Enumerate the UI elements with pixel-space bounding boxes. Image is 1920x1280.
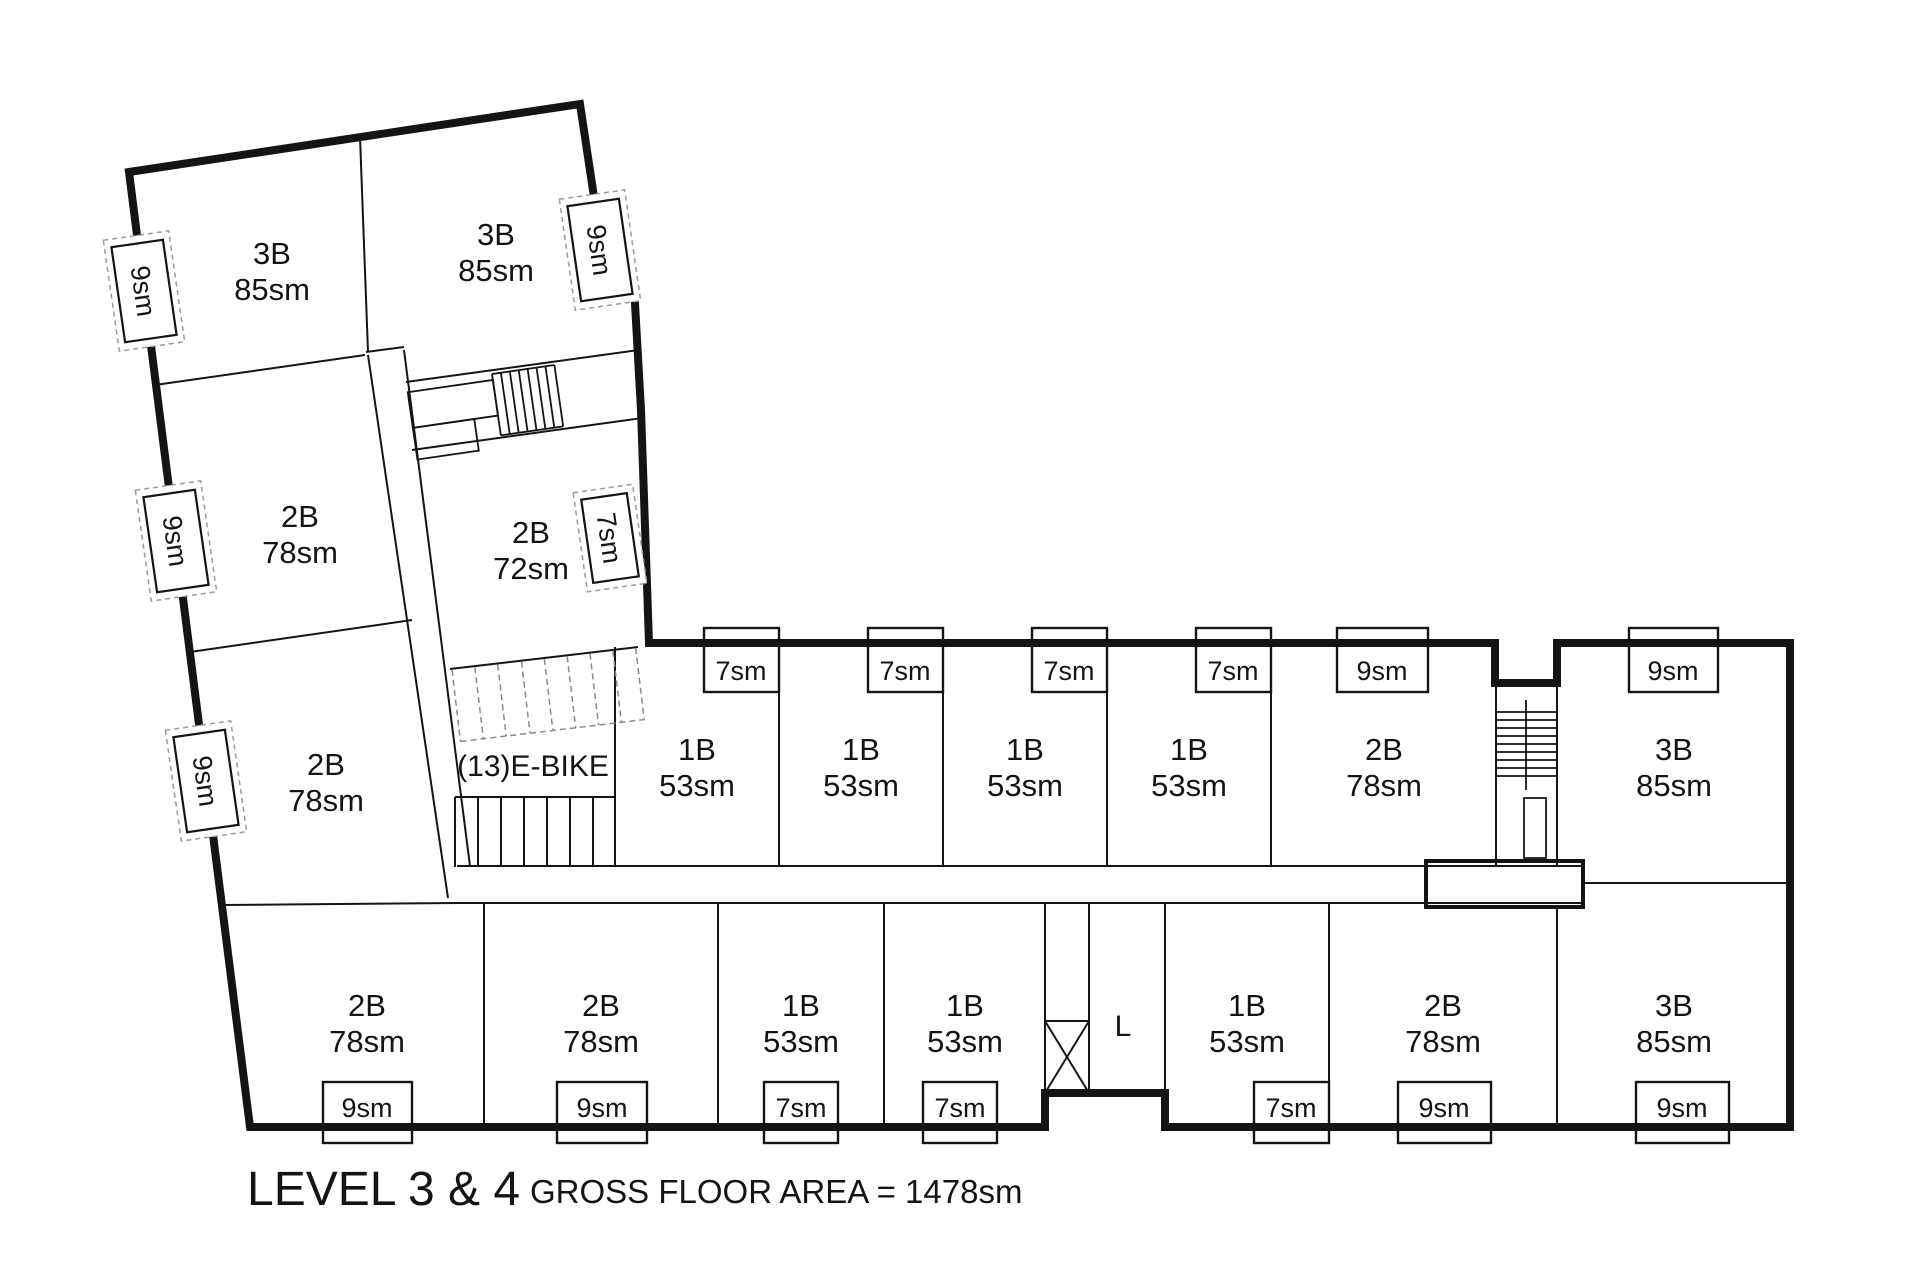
unit-area: 53sm [927, 1024, 1003, 1059]
unit-b1-2b: 2B 78sm [329, 988, 405, 1059]
elevator-label: L [1115, 1010, 1132, 1043]
unit-m1-1b: 1B 53sm [659, 732, 735, 803]
unit-m4-1b: 1B 53sm [1151, 732, 1227, 803]
balcony-label: 7sm [1043, 656, 1094, 686]
unit-type: 2B [281, 499, 319, 534]
balcony-label: 9sm [1647, 656, 1698, 686]
stair-landing [1426, 861, 1583, 907]
unit-area: 78sm [288, 783, 364, 818]
unit-w2-3b: 3B 85sm [458, 217, 534, 288]
unit-type: 1B [946, 988, 984, 1023]
unit-w3-2b: 2B 78sm [262, 499, 338, 570]
unit-w5-2b: 2B 78sm [288, 747, 364, 818]
balcony-boxes-bottom: 9sm 9sm 7sm 7sm 7sm 9sm 9sm [323, 1082, 1729, 1143]
unit-area: 85sm [1636, 768, 1712, 803]
unit-b3-1b: 1B 53sm [763, 988, 839, 1059]
unit-type: 2B [307, 747, 345, 782]
unit-type: 3B [1655, 988, 1693, 1023]
unit-type: 2B [512, 515, 550, 550]
unit-area: 78sm [1346, 768, 1422, 803]
unit-area: 53sm [763, 1024, 839, 1059]
unit-area: 53sm [659, 768, 735, 803]
unit-area: 85sm [1636, 1024, 1712, 1059]
unit-type: 1B [678, 732, 716, 767]
unit-area: 78sm [563, 1024, 639, 1059]
unit-type: 3B [1655, 732, 1693, 767]
unit-area: 85sm [458, 253, 534, 288]
unit-area: 85sm [234, 272, 310, 307]
interior-walls [155, 137, 1790, 1127]
plan-subtitle: GROSS FLOOR AREA = 1478sm [530, 1173, 1022, 1210]
balcony-label: 9sm [1356, 656, 1407, 686]
balcony-boxes-top: 7sm 7sm 7sm 7sm 9sm 9sm [704, 628, 1718, 692]
exterior-walls [129, 104, 1790, 1127]
unit-area: 78sm [262, 535, 338, 570]
unit-area: 53sm [823, 768, 899, 803]
floor-plan-drawing: 7sm 7sm 7sm 7sm 9sm 9sm 9sm 9sm 7sm 7sm … [0, 0, 1920, 1280]
unit-type: 1B [1170, 732, 1208, 767]
balcony-label: 9sm [1418, 1093, 1469, 1123]
unit-type: 3B [253, 236, 291, 271]
floor-plan-page: 7sm 7sm 7sm 7sm 9sm 9sm 9sm 9sm 7sm 7sm … [0, 0, 1920, 1280]
title-block: LEVEL 3 & 4 GROSS FLOOR AREA = 1478sm [247, 1163, 1022, 1216]
balcony-label: 9sm [1656, 1093, 1707, 1123]
balcony-label: 7sm [934, 1093, 985, 1123]
balcony-label: 7sm [775, 1093, 826, 1123]
right-staircase [1496, 700, 1557, 858]
unit-type: 3B [477, 217, 515, 252]
elevator-shaft [1045, 903, 1089, 1093]
unit-w4-2b: 2B 72sm [493, 515, 569, 586]
unit-type: 2B [348, 988, 386, 1023]
unit-area: 53sm [1151, 768, 1227, 803]
unit-type: 1B [782, 988, 820, 1023]
unit-area: 72sm [493, 551, 569, 586]
unit-b4-1b: 1B 53sm [927, 988, 1003, 1059]
balcony-label: 7sm [1265, 1093, 1316, 1123]
unit-labels: 3B 85sm 3B 85sm 2B 78sm 2B 72sm 2B 78sm … [234, 217, 1712, 1059]
ebike-room-label: (13)E-BIKE [457, 750, 609, 783]
balcony-label: 9sm [341, 1093, 392, 1123]
unit-type: 1B [842, 732, 880, 767]
unit-m2-1b: 1B 53sm [823, 732, 899, 803]
unit-m6-3b: 3B 85sm [1636, 732, 1712, 803]
balcony-label: 7sm [715, 656, 766, 686]
unit-b6-2b: 2B 78sm [1405, 988, 1481, 1059]
unit-m5-2b: 2B 78sm [1346, 732, 1422, 803]
unit-type: 1B [1006, 732, 1044, 767]
unit-area: 53sm [1209, 1024, 1285, 1059]
balcony-label: 9sm [576, 1093, 627, 1123]
unit-area: 78sm [329, 1024, 405, 1059]
unit-type: 2B [582, 988, 620, 1023]
plan-title: LEVEL 3 & 4 [247, 1163, 520, 1216]
balcony-boxes-wing: 9sm 9sm 9sm 9sm 7sm [103, 190, 646, 841]
unit-b5-1b: 1B 53sm [1209, 988, 1285, 1059]
balcony-label: 7sm [879, 656, 930, 686]
unit-b2-2b: 2B 78sm [563, 988, 639, 1059]
balcony-label: 7sm [1207, 656, 1258, 686]
unit-type: 2B [1365, 732, 1403, 767]
unit-area: 78sm [1405, 1024, 1481, 1059]
unit-area: 53sm [987, 768, 1063, 803]
unit-w1-3b: 3B 85sm [234, 236, 310, 307]
unit-type: 2B [1424, 988, 1462, 1023]
unit-m3-1b: 1B 53sm [987, 732, 1063, 803]
unit-b7-3b: 3B 85sm [1636, 988, 1712, 1059]
unit-type: 1B [1228, 988, 1266, 1023]
